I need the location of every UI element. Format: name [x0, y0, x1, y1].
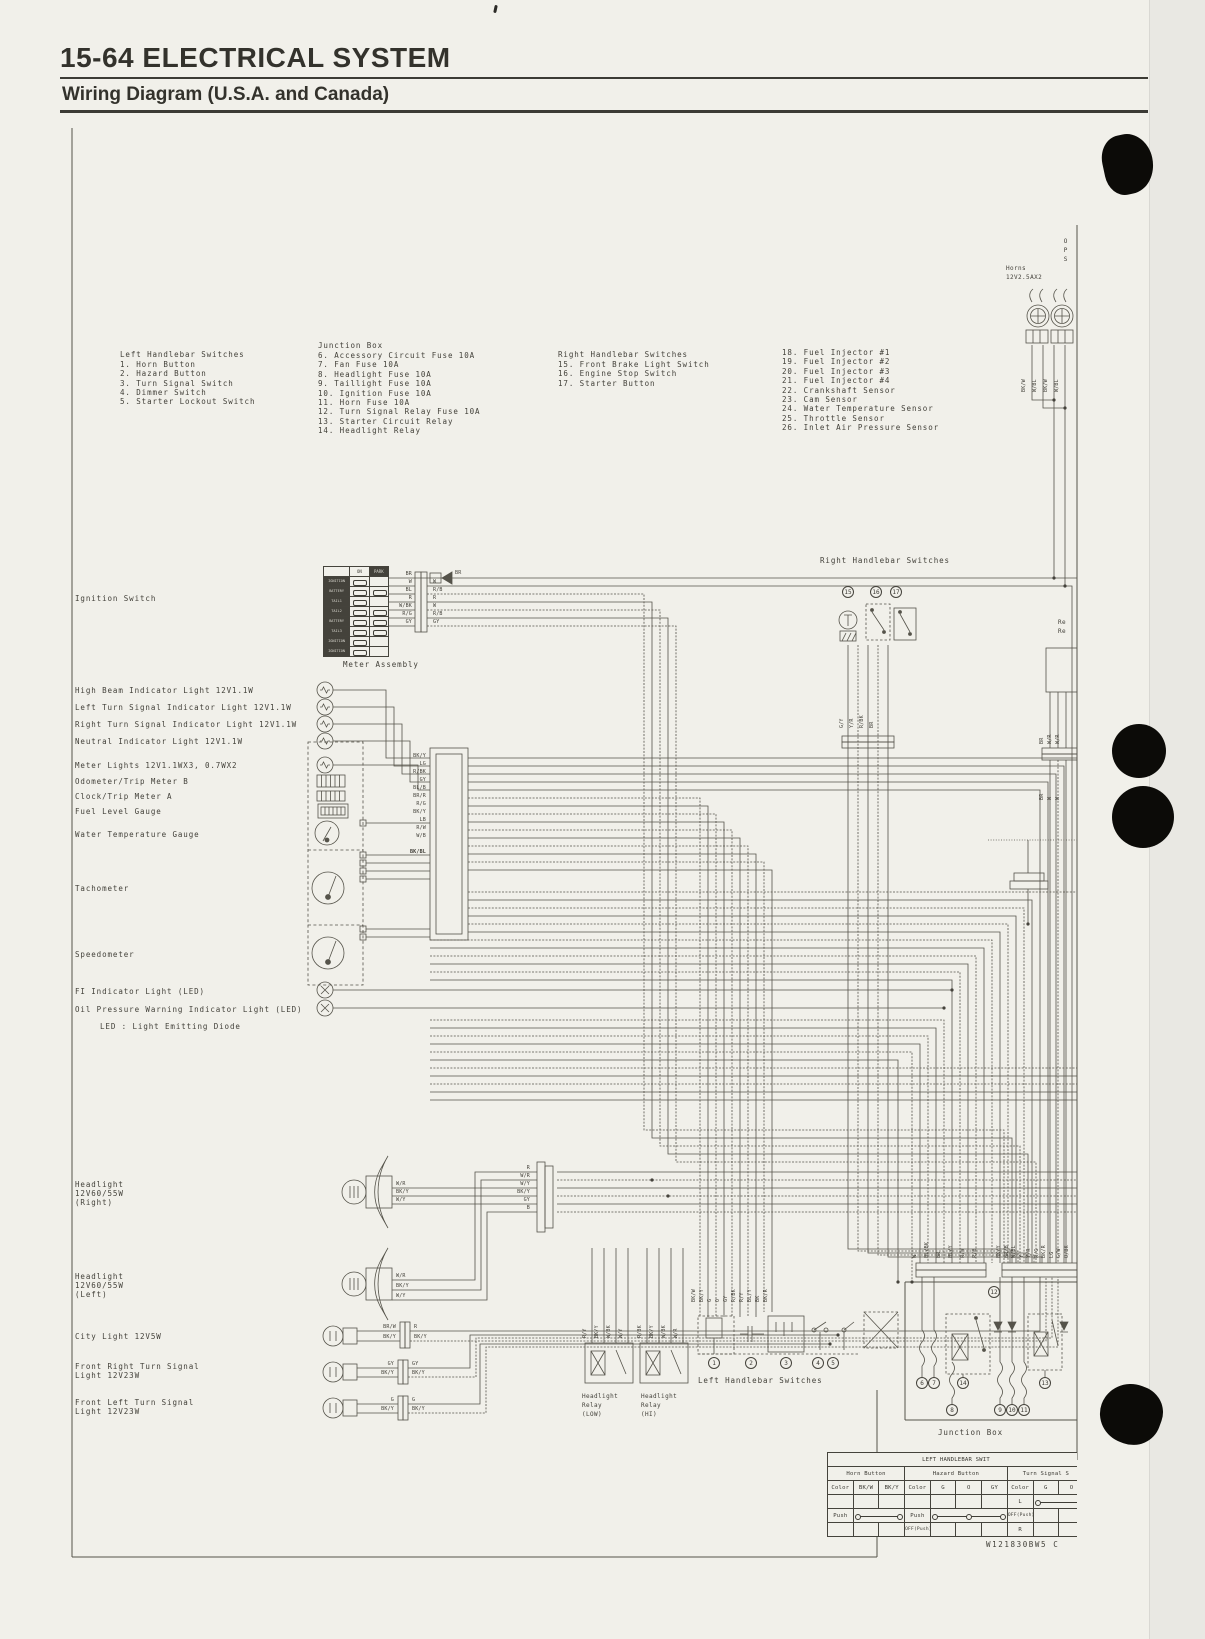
wire-label: BK/Y — [414, 1334, 427, 1340]
ts-right-rating: Light 12V23W — [75, 1371, 140, 1380]
wire-label: R/G — [1034, 1248, 1040, 1258]
wire-label: R — [506, 1165, 530, 1171]
wire-label: W/Y — [396, 1197, 406, 1203]
legend-item: 15. Front Brake Light Switch — [558, 360, 710, 369]
wire-label: BK/Y — [370, 1406, 394, 1412]
legend-item: 13. Starter Circuit Relay — [318, 417, 453, 426]
wire-label: BK/Y — [649, 1325, 655, 1338]
circled-10: 10 — [1006, 1404, 1018, 1416]
wire-label: BK/Y — [699, 1289, 705, 1302]
contact-bar — [857, 1516, 901, 1517]
legend-item: 12. Turn Signal Relay Fuse 10A — [318, 407, 480, 416]
meter-lights-label: Meter Lights 12V1.1WX3, 0.7WX2 — [75, 761, 237, 770]
circled-7: 7 — [928, 1377, 940, 1389]
wire-label: BK/BL — [398, 849, 426, 855]
lhb-bottom-label: Left Handlebar Switches — [698, 1376, 823, 1385]
legend-item: 6. Accessory Circuit Fuse 10A — [318, 351, 475, 360]
contact-bar — [934, 1516, 1004, 1517]
led-note: LED : Light Emitting Diode — [100, 1022, 241, 1031]
relay-hi-label: (HI) — [641, 1410, 657, 1419]
legend-item: 17. Starter Button — [558, 379, 655, 388]
odometer-label: Odometer/Trip Meter B — [75, 777, 189, 786]
headlight-left-rating: 12V60/55W — [75, 1281, 124, 1290]
legend-item: 8. Headlight Fuse 10A — [318, 370, 432, 379]
wire-label: BK/Y — [370, 1370, 394, 1376]
part-number: W121830BW5 C — [986, 1540, 1059, 1549]
col-header: O — [1059, 1481, 1077, 1495]
wire-label: BL/Y — [747, 1289, 753, 1302]
wire-label: W/BK — [661, 1325, 667, 1338]
wire-label: R/BK — [398, 769, 426, 775]
wire-label: BK/Y — [372, 1334, 396, 1340]
wire-label: R/G — [398, 801, 426, 807]
wire-label: BK/Y — [396, 1189, 409, 1195]
wire-label: W/Y — [506, 1181, 530, 1187]
col-header: Color — [1007, 1481, 1033, 1495]
circled-1: 1 — [708, 1357, 720, 1369]
legend-item: 5. Starter Lockout Switch — [120, 397, 255, 406]
ts-left-label: Front Left Turn Signal — [75, 1398, 194, 1407]
wire-label: BR — [390, 571, 412, 577]
col-header: BK/Y — [879, 1481, 905, 1495]
circled-3: 3 — [780, 1357, 792, 1369]
legend-item: 4. Dimmer Switch — [120, 388, 207, 397]
legend-item: 18. Fuel Injector #1 — [782, 348, 890, 357]
wire-label: G — [412, 1397, 415, 1403]
meter-assembly-label: Meter Assembly — [343, 660, 419, 669]
wire-label: W/R — [673, 1328, 679, 1338]
regulator-label-cut: Re — [1058, 618, 1066, 627]
legend-item: 16. Engine Stop Switch — [558, 369, 677, 378]
right-turn-label: Right Turn Signal Indicator Light 12V1.1… — [75, 720, 297, 729]
ign-row-label: IGNITION — [324, 637, 349, 646]
wire-label: BK/Y — [396, 1283, 409, 1289]
wire-label: W/R — [1047, 734, 1053, 744]
wire-label: R — [414, 1324, 417, 1330]
wire-label: R/B — [972, 1248, 978, 1258]
wire-label: W — [433, 603, 436, 609]
wire-label: BR — [869, 722, 875, 728]
legend-item: 10. Ignition Fuse 10A — [318, 389, 432, 398]
speedometer-label: Speedometer — [75, 950, 135, 959]
ign-on-header: ON — [349, 567, 368, 576]
wire-label: BL — [390, 587, 412, 593]
headlight-right-rating: 12V60/55W — [75, 1189, 124, 1198]
left-handlebar-switch-table: LEFT HANDLEBAR SWIT Horn Button Hazard B… — [827, 1452, 1077, 1540]
rhb-mid-label: Right Handlebar Switches — [820, 556, 950, 565]
legend-item: 25. Throttle Sensor — [782, 414, 885, 423]
wire-label: G/Y — [839, 718, 845, 728]
wire-label: W — [433, 579, 436, 585]
wire-label: BK/Y — [398, 809, 426, 815]
left-turn-label: Left Turn Signal Indicator Light 12V1.1W — [75, 703, 292, 712]
circled-16: 16 — [870, 586, 882, 598]
circled-11: 11 — [1018, 1404, 1030, 1416]
wire-label: BK/Y — [412, 1406, 425, 1412]
wire-label: W — [390, 579, 412, 585]
table-horn-header: Horn Button — [828, 1467, 905, 1481]
col-header: Color — [905, 1481, 931, 1495]
neutral-label: Neutral Indicator Light 12V1.1W — [75, 737, 243, 746]
headlight-right-side: (Right) — [75, 1198, 113, 1207]
city-light-label: City Light 12V5W — [75, 1332, 162, 1341]
ign-park-header: PARK — [369, 567, 388, 576]
water-temp-label: Water Temperature Gauge — [75, 830, 200, 839]
circled-6: 6 — [916, 1377, 928, 1389]
wire-label: R/BK — [731, 1289, 737, 1302]
wire-label: R/Y — [739, 1292, 745, 1302]
table-cell-push: Push — [905, 1509, 931, 1523]
wire-label: GY — [398, 777, 426, 783]
ign-row-label: BATTERY — [324, 587, 349, 596]
wire-label: R/G — [390, 611, 412, 617]
legend-item: 7. Fan Fuse 10A — [318, 360, 399, 369]
wire-label: W/BK — [606, 1325, 612, 1338]
table-turn-header: Turn Signal S — [1007, 1467, 1077, 1481]
legend-item: 22. Crankshaft Sensor — [782, 386, 896, 395]
scan-blob — [1112, 724, 1166, 778]
wire-label: BK/Y — [398, 753, 426, 759]
headlight-left-side: (Left) — [75, 1290, 108, 1299]
horns-label: Horns — [1006, 264, 1026, 273]
wire-label: G — [370, 1397, 394, 1403]
wire-label: BK/Y — [506, 1189, 530, 1195]
wire-label: BK/Y — [412, 1370, 425, 1376]
wiring-mesh — [72, 128, 1077, 1557]
legend-item: 21. Fuel Injector #4 — [782, 376, 890, 385]
wire-label: BR/W — [372, 1324, 396, 1330]
wire-label: GY — [506, 1197, 530, 1203]
ops-label: OPS — [1062, 238, 1069, 265]
high-beam-label: High Beam Indicator Light 12V1.1W — [75, 686, 254, 695]
headlight-left-label: Headlight — [75, 1272, 124, 1281]
circled-8: 8 — [946, 1404, 958, 1416]
legend-item: 24. Water Temperature Sensor — [782, 404, 934, 413]
horns-rating: 12V2.5AX2 — [1006, 273, 1042, 282]
legend-item: 3. Turn Signal Switch — [120, 379, 234, 388]
wire-label: BR/R — [398, 793, 426, 799]
ign-row-label: TAIL2 — [324, 607, 349, 616]
wire-label: R/W — [960, 1248, 966, 1258]
wire-label: BK/W — [1021, 379, 1027, 392]
table-cell-l: L — [1007, 1495, 1033, 1509]
legend-item: 9. Taillight Fuse 10A — [318, 379, 432, 388]
wire-label: R/W — [398, 825, 426, 831]
ts-right-label: Front Right Turn Signal — [75, 1362, 200, 1371]
table-cell-push: Push — [828, 1509, 854, 1523]
legend-jb-title: Junction Box — [318, 341, 383, 350]
legend-lhb-title: Left Handlebar Switches — [120, 350, 245, 359]
wire-label: BR — [1039, 794, 1045, 800]
col-header: BK/W — [853, 1481, 879, 1495]
table-cell-r: R — [1007, 1523, 1033, 1537]
circled-13: 13 — [1039, 1377, 1051, 1389]
regulator-label-cut: Re — [1058, 627, 1066, 636]
legend-item: 1. Horn Button — [120, 360, 196, 369]
oil-light-label: Oil Pressure Warning Indicator Light (LE… — [75, 1005, 302, 1014]
wire-label: R — [390, 595, 412, 601]
wire-label: GY — [412, 1361, 418, 1367]
wire-label: BR — [936, 1252, 942, 1258]
col-header: G — [930, 1481, 956, 1495]
wire-label: GY — [370, 1361, 394, 1367]
wire-label: BL/BK — [924, 1242, 930, 1258]
scanned-manual-page: 15-64 ELECTRICAL SYSTEM Wiring Diagram (… — [0, 0, 1205, 1639]
circled-12: 12 — [988, 1286, 1000, 1298]
legend-item: 19. Fuel Injector #2 — [782, 357, 890, 366]
table-cell-offpush: OFF(Push) — [1007, 1509, 1033, 1523]
wire-label: B — [506, 1205, 530, 1211]
contact-bar — [1037, 1502, 1078, 1503]
wire-label: LB — [398, 817, 426, 823]
wire-label: BK/R — [1041, 1245, 1047, 1258]
wire-label: W — [912, 1255, 918, 1258]
wire-label: R/BK — [637, 1325, 643, 1338]
col-header: Color — [828, 1481, 854, 1495]
fuel-gauge-label: Fuel Level Gauge — [75, 807, 162, 816]
wire-label: G/W — [1056, 1248, 1062, 1258]
wire-label: Y/R — [1026, 1248, 1032, 1258]
wire-label: GY — [723, 1296, 729, 1302]
ts-left-rating: Light 12V23W — [75, 1407, 140, 1416]
wire-label: W/BL — [1032, 379, 1038, 392]
wire-label: G — [707, 1299, 713, 1302]
circled-4: 4 — [812, 1357, 824, 1369]
clock-label: Clock/Trip Meter A — [75, 792, 172, 801]
wire-label: O/BK — [1064, 1245, 1070, 1258]
circled-2: 2 — [745, 1357, 757, 1369]
wire-label: BR — [455, 570, 461, 576]
ignition-switch-block: ON PARK IGNITION BATTERY TAIL1 TAIL2 BAT… — [323, 566, 389, 657]
wire-label: R/B — [433, 587, 443, 593]
wire-label: R/BK — [859, 715, 865, 728]
col-header: O — [956, 1481, 982, 1495]
circled-14: 14 — [957, 1377, 969, 1389]
wire-label: BR — [1039, 738, 1045, 744]
wire-label: BL/Y — [948, 1245, 954, 1258]
wire-label: GY — [433, 619, 439, 625]
wire-label: LG — [398, 761, 426, 767]
wire-label: W/R — [396, 1181, 406, 1187]
relay-low-label: (LOW) — [582, 1410, 602, 1419]
wire-label: W/BL — [1011, 1245, 1017, 1258]
legend-item: 26. Inlet Air Pressure Sensor — [782, 423, 939, 432]
wire-label: R/Y — [582, 1328, 588, 1338]
legend-item: 20. Fuel Injector #3 — [782, 367, 890, 376]
col-header: GY — [982, 1481, 1008, 1495]
wire-label: O — [715, 1299, 721, 1302]
ign-row-label: TAIL1 — [324, 597, 349, 606]
legend-item: 2. Hazard Button — [120, 369, 207, 378]
headlight-right-label: Headlight — [75, 1180, 124, 1189]
table-cell-offpush: OFF(Push) — [905, 1523, 931, 1537]
ign-row-label: IGNITION — [324, 577, 349, 586]
relay-low-label: Relay — [582, 1401, 602, 1410]
wire-label: W/R — [396, 1273, 406, 1279]
relay-hi-label: Headlight — [641, 1392, 677, 1401]
circled-5: 5 — [827, 1357, 839, 1369]
wire-label: W — [1047, 797, 1053, 800]
wire-label: W/BK — [390, 603, 412, 609]
wire-label: R/B — [433, 611, 443, 617]
wire-label: W/B — [398, 833, 426, 839]
wire-label: BK/Y — [996, 1245, 1002, 1258]
fi-light-label: FI Indicator Light (LED) — [75, 987, 205, 996]
wire-label: LG — [1049, 1252, 1055, 1258]
legend-item: 23. Cam Sensor — [782, 395, 858, 404]
wire-label: W/Y — [618, 1328, 624, 1338]
wire-label: W — [1055, 797, 1061, 800]
ign-row-label: BATTERY — [324, 617, 349, 626]
tachometer-label: Tachometer — [75, 884, 129, 893]
wire-label: W/Y — [396, 1293, 406, 1299]
relay-hi-label: Relay — [641, 1401, 661, 1410]
wire-label: BR/B — [1004, 1245, 1010, 1258]
wire-label: BK — [755, 1296, 761, 1302]
ign-row-label: TAIL3 — [324, 627, 349, 636]
wire-label: BK/W — [1043, 379, 1049, 392]
wire-label: W/R — [1055, 734, 1061, 744]
wire-label: Y/R — [849, 718, 855, 728]
circled-17: 17 — [890, 586, 902, 598]
wire-label: BK/W — [691, 1289, 697, 1302]
junction-box-label: Junction Box — [938, 1428, 1003, 1437]
wire-label: BL/B — [398, 785, 426, 791]
wire-label: R — [433, 595, 436, 601]
table-title: LEFT HANDLEBAR SWIT — [828, 1453, 1078, 1467]
legend-rhb-title: Right Handlebar Switches — [558, 350, 688, 359]
wire-label: BK/R — [763, 1289, 769, 1302]
ignition-switch-label: Ignition Switch — [75, 594, 156, 603]
circled-15: 15 — [842, 586, 854, 598]
ign-row-label: IGNITION — [324, 647, 349, 656]
table-hazard-header: Hazard Button — [905, 1467, 1008, 1481]
scan-blob — [1112, 786, 1174, 848]
wire-label: BK/Y — [594, 1325, 600, 1338]
col-header: G — [1033, 1481, 1059, 1495]
wire-label: W/R — [506, 1173, 530, 1179]
legend-item: 14. Headlight Relay — [318, 426, 421, 435]
wire-label: W/BL — [1054, 379, 1060, 392]
legend-item: 11. Horn Fuse 10A — [318, 398, 410, 407]
wire-label: Y — [1019, 1255, 1025, 1258]
circled-9: 9 — [994, 1404, 1006, 1416]
relay-low-label: Headlight — [582, 1392, 618, 1401]
wire-label: GY — [390, 619, 412, 625]
